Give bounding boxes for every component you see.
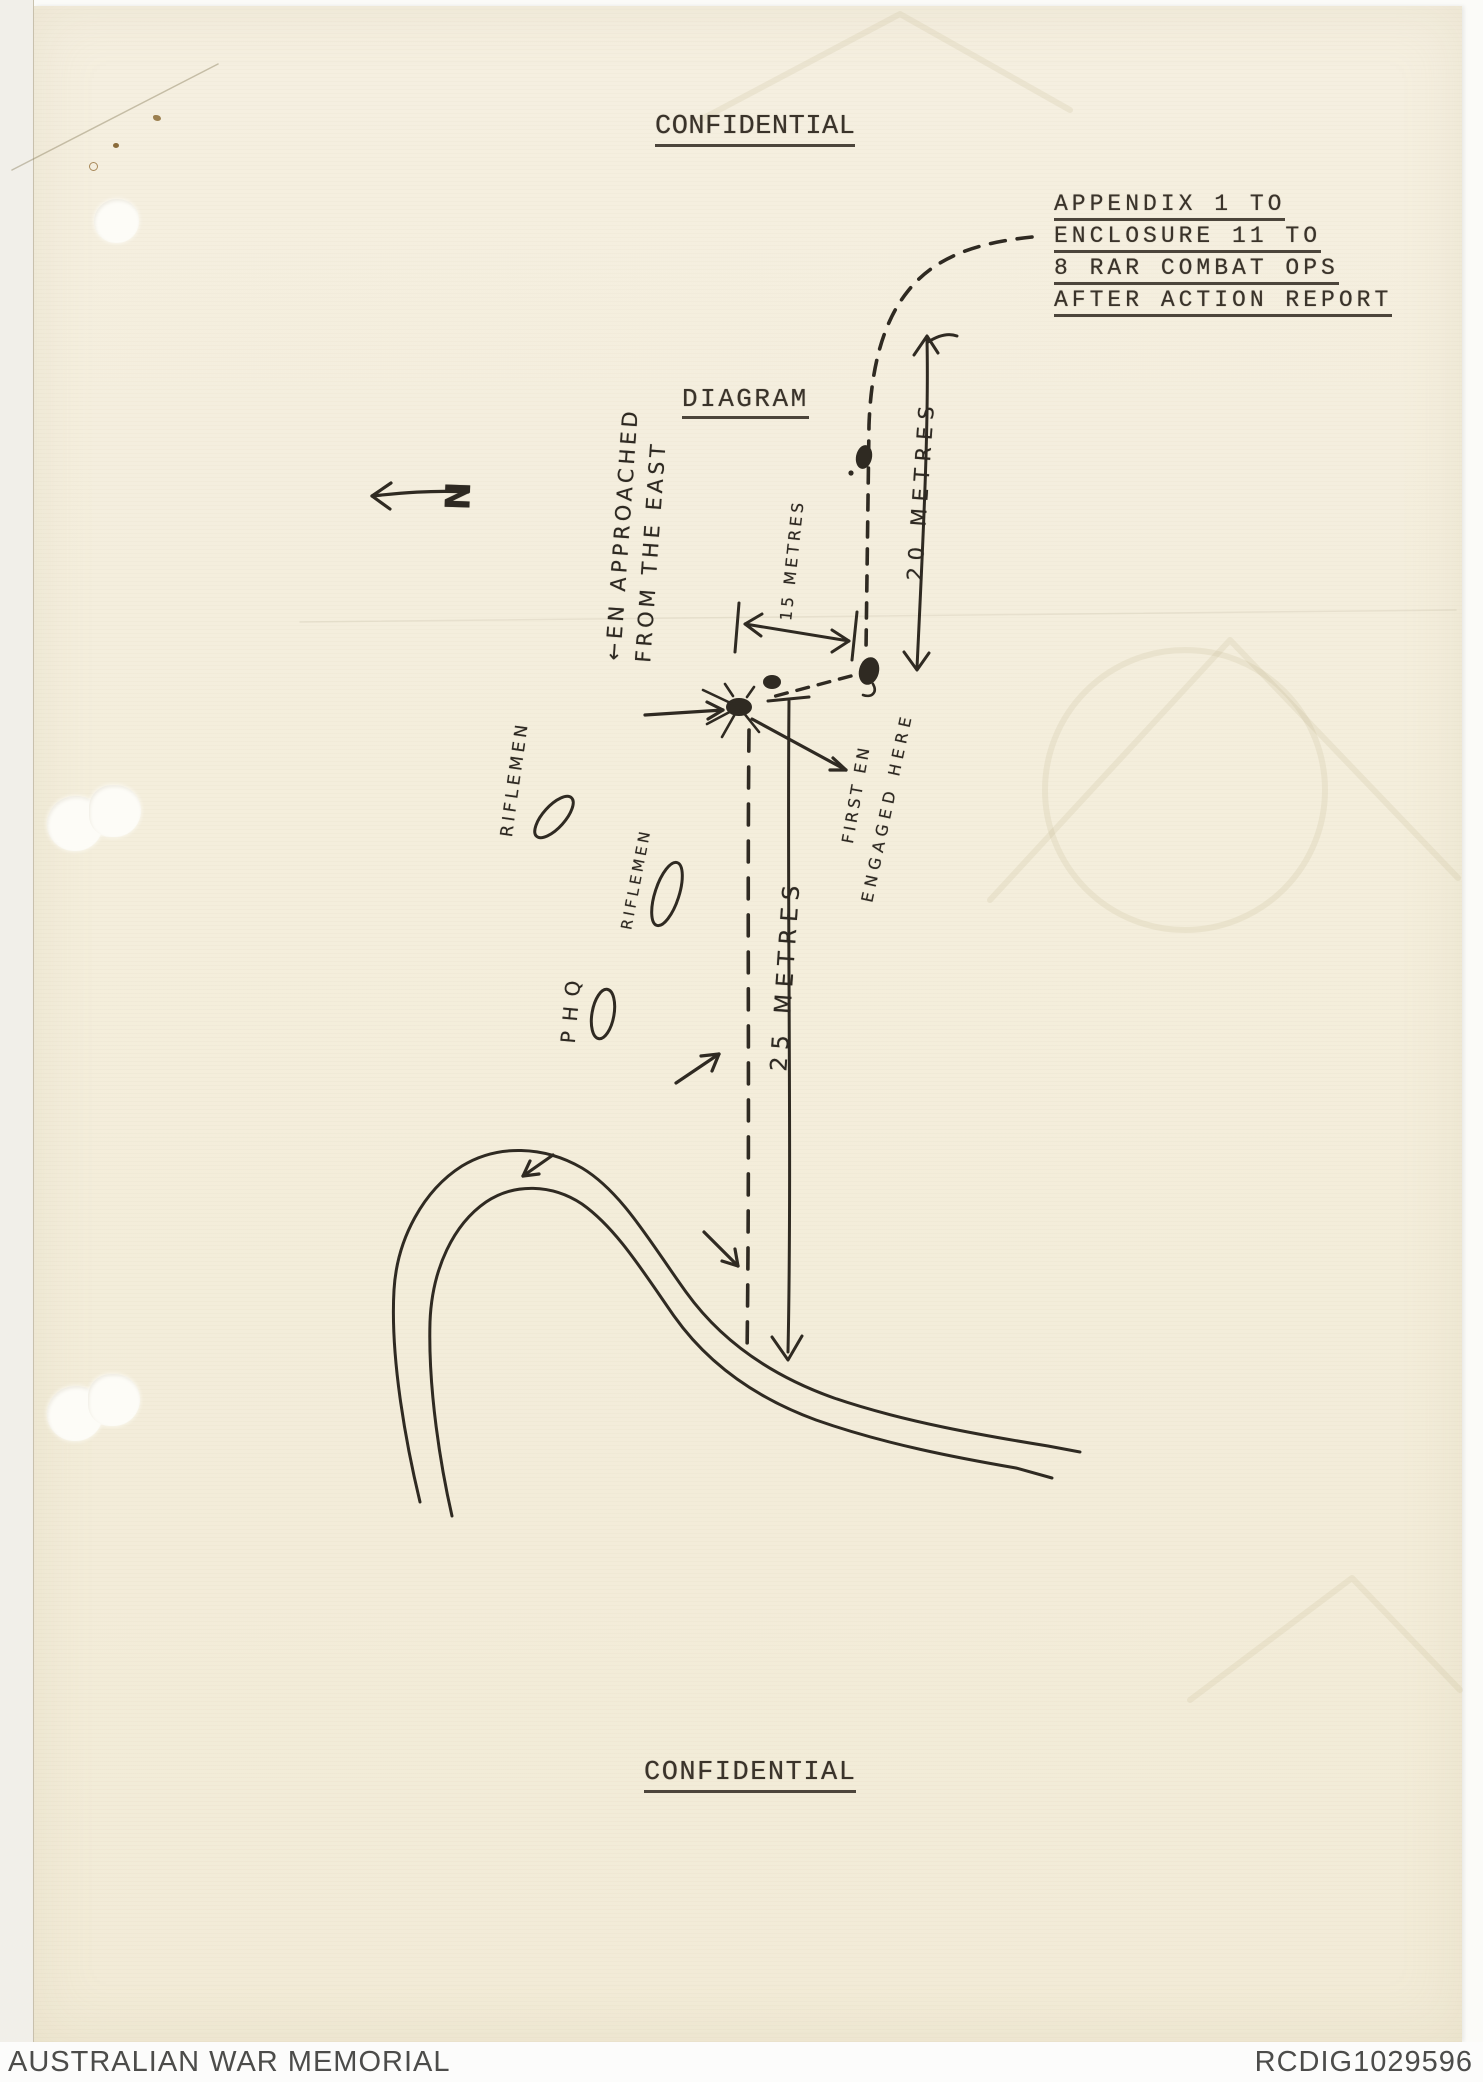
creek-pointer-arrow (523, 1155, 553, 1176)
archive-footer-bar: AUSTRALIAN WAR MEMORIAL RCDIG1029596 (0, 2042, 1483, 2082)
riflemen-position-ellipses (528, 790, 688, 929)
phq-position-ellipse (588, 987, 618, 1040)
archive-reference-id: RCDIG1029596 (1255, 2046, 1473, 2079)
classification-footer-text: CONFIDENTIAL (644, 1758, 856, 1793)
fold-crease (300, 610, 1456, 622)
appendix-block: APPENDIX 1 TO ENCLOSURE 11 TO 8 RAR COMB… (1054, 190, 1392, 318)
classification-header: CONFIDENTIAL (655, 112, 855, 147)
contact-pointer-arrow (645, 702, 723, 719)
classification-footer: CONFIDENTIAL (644, 1758, 856, 1793)
archive-name: AUSTRALIAN WAR MEMORIAL (8, 2046, 450, 2079)
appendix-line-4: AFTER ACTION REPORT (1054, 286, 1392, 317)
first-engaged-pointer-arrow (752, 719, 846, 770)
track-pointer-arrow-1 (676, 1054, 719, 1083)
creek-double-line (393, 1150, 1080, 1516)
appendix-line-3: 8 RAR COMBAT OPS (1054, 254, 1339, 285)
corner-crease (12, 64, 218, 170)
diagram-title-text: DIAGRAM (682, 384, 809, 419)
scanned-document-page: CONFIDENTIAL APPENDIX 1 TO ENCLOSURE 11 … (0, 0, 1483, 2082)
classification-header-text: CONFIDENTIAL (655, 112, 855, 147)
appendix-line-2: ENCLOSURE 11 TO (1054, 222, 1321, 253)
north-label: N (436, 481, 477, 511)
enemy-dot-tail (863, 684, 875, 696)
track-pointer-arrow-2 (704, 1232, 738, 1266)
diagram-title: DIAGRAM (682, 384, 809, 419)
appendix-line-1: APPENDIX 1 TO (1054, 190, 1285, 221)
